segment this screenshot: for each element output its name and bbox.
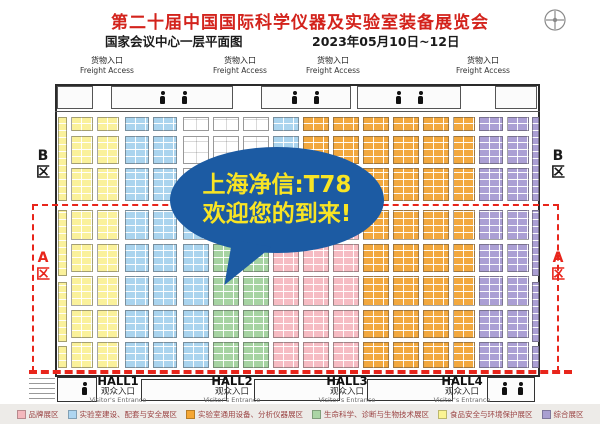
- legend-swatch: [312, 410, 321, 419]
- booth-block-orange: [333, 117, 359, 131]
- freight-access-label: 货物入口Freight Access: [213, 56, 267, 75]
- legend-label: 综合展区: [554, 409, 584, 420]
- booth-block-yellow: [58, 117, 67, 201]
- legend-label: 食品安全与环境保护展区: [450, 409, 533, 420]
- booth-block-orange: [363, 136, 389, 164]
- dock-room: [261, 86, 351, 109]
- booth-block-orange: [393, 136, 419, 164]
- dock-room: [495, 86, 537, 109]
- legend-bar: 品牌展区实验室建设、配套与安全展区实验室通用设备、分析仪器展区生命科学、诊断与生…: [0, 404, 600, 424]
- person-icon: [518, 387, 523, 395]
- bubble-line-2: 欢迎您的到来!: [203, 200, 352, 229]
- date-range: 2023年05月10日~12日: [312, 31, 459, 50]
- dock-room: [57, 86, 93, 109]
- hall-label-hall4: HALL4观众入口Visitor's Entrance: [434, 375, 491, 404]
- stairs-lines: [29, 377, 55, 399]
- booth-block-purple: [507, 168, 529, 201]
- legend-label: 实验室通用设备、分析仪器展区: [198, 409, 303, 420]
- booth-block-orange: [453, 117, 475, 131]
- booth-block-purple: [479, 136, 503, 164]
- booth-block-blue: [153, 117, 177, 131]
- booth-block-orange: [303, 117, 329, 131]
- booth-block-yellow: [97, 168, 119, 201]
- booth-block-purple: [507, 136, 529, 164]
- booth-block-orange: [393, 117, 419, 131]
- booth-block-blue: [273, 117, 299, 131]
- person-icon: [396, 96, 401, 104]
- booth-block-yellow: [71, 117, 93, 131]
- zone-b-label-right: B区: [549, 148, 567, 182]
- zone-b-label-left: B区: [34, 148, 52, 182]
- hall-label-hall3: HALL3观众入口Visitor's Entrance: [319, 375, 376, 404]
- announcement-bubble: 上海净信:T78 欢迎您的到来!: [170, 147, 384, 253]
- booth-block-orange: [423, 168, 449, 201]
- bubble-line-1: 上海净信:T78: [203, 171, 352, 200]
- hall-label-hall1: HALL1观众入口Visitor's Entrance: [90, 375, 147, 404]
- booth-block-orange: [363, 117, 389, 131]
- legend-item: 食品安全与环境保护展区: [438, 409, 533, 420]
- booth-block-purple: [479, 117, 503, 131]
- booth-block-blue: [125, 168, 149, 201]
- legend-swatch: [68, 410, 77, 419]
- person-icon: [182, 96, 187, 104]
- booth-block-purple: [479, 168, 503, 201]
- legend-swatch: [17, 410, 26, 419]
- booth-block-yellow: [71, 136, 93, 164]
- booth-block-orange: [423, 117, 449, 131]
- booth-block-white: [183, 117, 209, 131]
- booth-block-white: [243, 117, 269, 131]
- booth-block-yellow: [71, 168, 93, 201]
- legend-item: 综合展区: [542, 409, 584, 420]
- legend-swatch: [438, 410, 447, 419]
- venue-label: 国家会议中心一层平面图: [105, 31, 243, 50]
- legend-item: 实验室通用设备、分析仪器展区: [186, 409, 303, 420]
- booth-block-yellow: [97, 117, 119, 131]
- freight-access-label: 货物入口Freight Access: [80, 56, 134, 75]
- person-icon: [314, 96, 319, 104]
- booth-block-blue: [153, 136, 177, 164]
- legend-item: 品牌展区: [17, 409, 59, 420]
- booth-block-white: [213, 117, 239, 131]
- page-title: 第二十届中国国际科学仪器及实验室装备展览会: [0, 8, 600, 33]
- freight-access-label: 货物入口Freight Access: [306, 56, 360, 75]
- booth-block-blue: [125, 136, 149, 164]
- legend-item: 实验室建设、配套与安全展区: [68, 409, 178, 420]
- person-icon: [418, 96, 423, 104]
- booth-block-purple: [532, 117, 539, 201]
- dock-room: [111, 86, 233, 109]
- legend-swatch: [186, 410, 195, 419]
- booth-block-orange: [453, 168, 475, 201]
- freight-access-label: 货物入口Freight Access: [456, 56, 510, 75]
- zone-a-label-left: A区: [34, 250, 52, 284]
- booth-block-yellow: [97, 136, 119, 164]
- person-icon: [502, 387, 507, 395]
- loading-dock-band: [55, 84, 540, 112]
- person-icon: [292, 96, 297, 104]
- legend-swatch: [542, 410, 551, 419]
- zone-a-label-right: A区: [549, 250, 567, 284]
- dock-room: [357, 86, 461, 109]
- legend-label: 生命科学、诊断与生物技术展区: [324, 409, 429, 420]
- exhibition-floor-plan-page: { "header": { "title": "第二十届中国国际科学仪器及实验室…: [0, 0, 600, 424]
- booth-block-orange: [423, 136, 449, 164]
- booth-block-blue: [125, 117, 149, 131]
- hall-label-hall2: HALL2观众入口Visitor's Entrance: [204, 375, 261, 404]
- person-icon: [82, 387, 87, 395]
- entrance-room: [487, 377, 535, 402]
- legend-item: 生命科学、诊断与生物技术展区: [312, 409, 429, 420]
- booth-block-orange: [393, 168, 419, 201]
- legend-label: 品牌展区: [29, 409, 59, 420]
- legend-label: 实验室建设、配套与安全展区: [80, 409, 178, 420]
- booth-block-orange: [453, 136, 475, 164]
- booth-block-purple: [507, 117, 529, 131]
- compass-icon: [543, 8, 567, 36]
- person-icon: [160, 96, 165, 104]
